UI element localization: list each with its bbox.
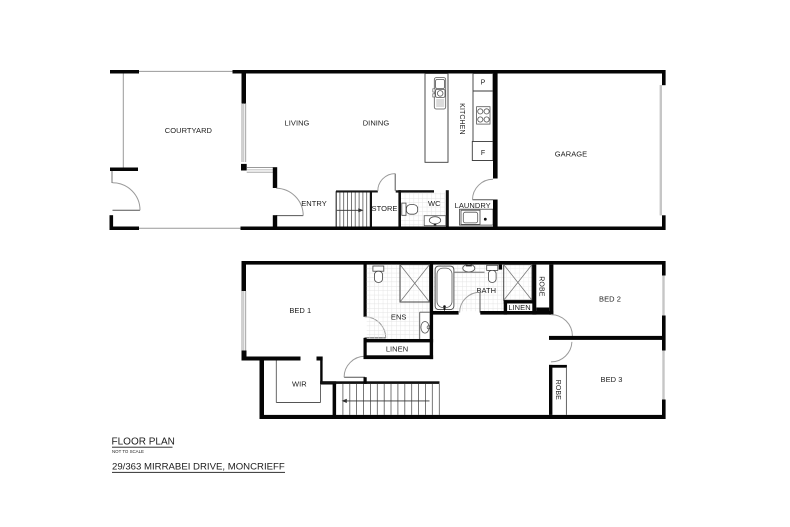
svg-text:BED 2: BED 2 <box>599 295 621 304</box>
svg-text:DINING: DINING <box>363 119 390 128</box>
svg-text:BED 3: BED 3 <box>601 375 623 384</box>
svg-text:WC: WC <box>428 199 441 208</box>
svg-text:ENS: ENS <box>391 313 407 322</box>
svg-text:FLOOR PLAN: FLOOR PLAN <box>112 436 175 447</box>
svg-text:BED 1: BED 1 <box>289 306 311 315</box>
svg-text:LINEN: LINEN <box>386 344 408 353</box>
svg-text:GARAGE: GARAGE <box>555 150 587 159</box>
svg-text:COURTYARD: COURTYARD <box>165 126 213 135</box>
svg-text:LIVING: LIVING <box>285 119 310 128</box>
svg-text:LAUNDRY: LAUNDRY <box>455 201 491 210</box>
svg-text:WIR: WIR <box>292 379 307 388</box>
svg-text:P: P <box>481 79 486 86</box>
svg-text:ROBE: ROBE <box>538 276 545 296</box>
svg-text:BATH: BATH <box>476 286 496 295</box>
svg-text:NOT TO SCALE: NOT TO SCALE <box>112 449 144 454</box>
svg-text:29/363 MIRRABEI DRIVE, MONCRIE: 29/363 MIRRABEI DRIVE, MONCRIEFF <box>112 461 285 472</box>
svg-text:STORE: STORE <box>372 204 398 213</box>
svg-text:ROBE: ROBE <box>554 380 561 400</box>
svg-text:ENTRY: ENTRY <box>301 199 327 208</box>
svg-text:F: F <box>481 150 485 157</box>
svg-text:KITCHEN: KITCHEN <box>458 103 465 134</box>
svg-text:LINEN: LINEN <box>508 303 530 312</box>
